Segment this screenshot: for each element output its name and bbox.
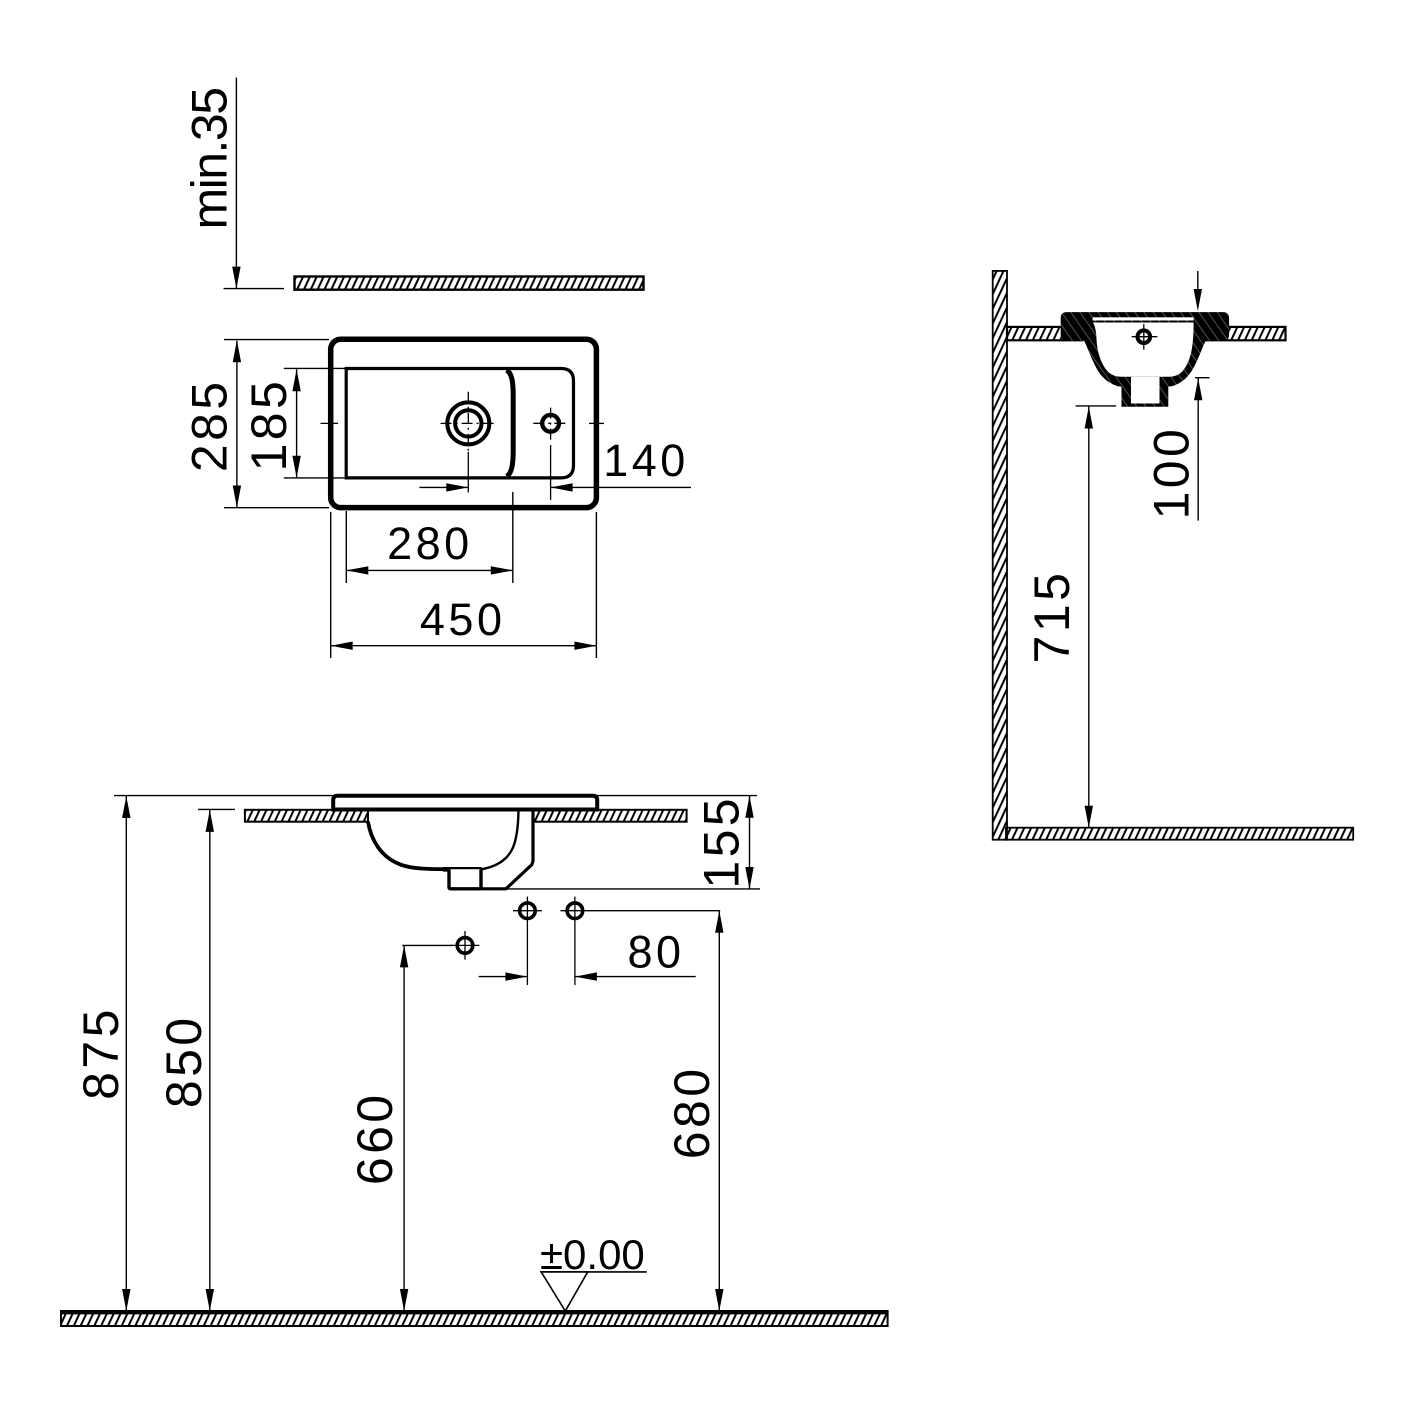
svg-text:875: 875: [73, 1006, 129, 1100]
svg-text:100: 100: [1144, 426, 1200, 520]
svg-text:715: 715: [1024, 570, 1080, 664]
svg-text:80: 80: [627, 927, 684, 978]
svg-text:285: 285: [182, 378, 238, 472]
svg-text:850: 850: [156, 1014, 212, 1108]
svg-text:680: 680: [664, 1066, 720, 1160]
svg-text:185: 185: [241, 378, 297, 472]
svg-text:660: 660: [347, 1091, 403, 1185]
svg-text:min.35: min.35: [182, 88, 238, 229]
svg-text:140: 140: [603, 435, 689, 486]
svg-text:155: 155: [694, 795, 750, 889]
svg-text:±0.00: ±0.00: [540, 1231, 645, 1278]
svg-text:280: 280: [387, 518, 473, 569]
svg-text:450: 450: [420, 594, 506, 645]
